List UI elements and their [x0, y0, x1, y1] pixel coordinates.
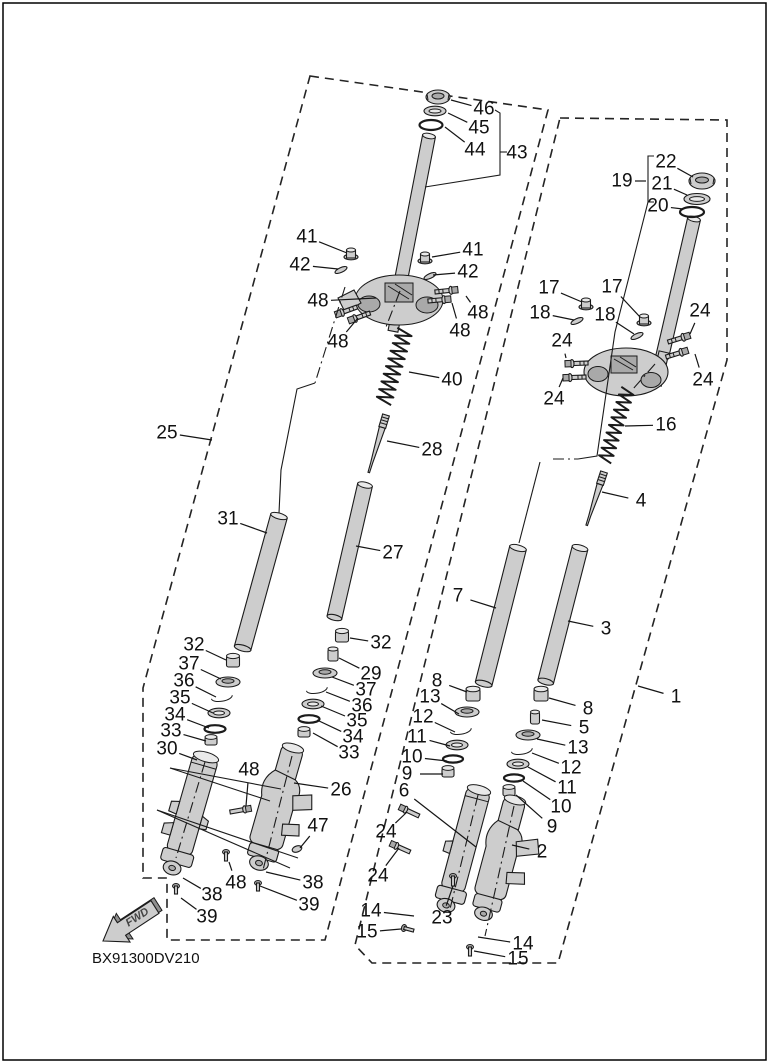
- bush-5: [531, 710, 540, 724]
- callout-leader: [313, 733, 338, 747]
- callout-leader: [671, 208, 683, 209]
- clip-36-right: [306, 687, 327, 695]
- callout-46: 46: [473, 99, 494, 120]
- callout-42: 42: [457, 262, 478, 283]
- callout-leader: [181, 898, 197, 909]
- spacer-8-right: [534, 686, 548, 701]
- seal-11-left: [446, 740, 468, 750]
- clip-12-right: [511, 748, 532, 756]
- callout-45: 45: [468, 118, 489, 139]
- callout-47: 47: [307, 816, 328, 837]
- callout-leader: [638, 686, 664, 693]
- callout-18: 18: [594, 305, 615, 326]
- callout-41: 41: [296, 227, 317, 248]
- seal-35-left: [208, 708, 230, 718]
- steering-oring-44: [420, 120, 443, 130]
- fork-spring-40: [376, 328, 413, 405]
- callout-leader: [313, 266, 338, 269]
- callout-24: 24: [692, 370, 714, 391]
- callout-leader: [553, 316, 574, 320]
- callout-leader: [206, 651, 226, 660]
- callout-4: 4: [636, 491, 647, 512]
- callout-28: 28: [421, 440, 442, 461]
- callout-leader: [451, 100, 471, 106]
- callout-leader: [528, 767, 556, 782]
- callout-24: 24: [367, 866, 389, 887]
- callout-leader: [409, 372, 439, 378]
- grommet-41-left: [344, 248, 358, 260]
- callout-leader: [386, 848, 399, 866]
- callout-leader: [602, 492, 628, 498]
- callout-16: 16: [655, 415, 676, 436]
- callout-leader: [266, 872, 300, 880]
- callout-leader: [183, 878, 201, 888]
- spacer-8-left: [466, 686, 480, 701]
- callout-17: 17: [601, 277, 622, 298]
- callout-leader: [180, 435, 212, 440]
- inner-tube-31: [234, 511, 288, 653]
- callout-10: 10: [550, 797, 571, 818]
- callout-19: 19: [611, 171, 632, 192]
- callout-leader: [229, 862, 232, 871]
- callout-leader: [470, 600, 496, 608]
- washer-34-left: [205, 725, 226, 733]
- callout-leader: [432, 252, 460, 257]
- callout-12: 12: [560, 758, 581, 779]
- callout-25: 25: [156, 423, 177, 444]
- steering-oring-20: [680, 207, 704, 217]
- callout-42: 42: [289, 255, 310, 276]
- diagram-svg: FWD BX91300DV210 46454443414241424848484…: [0, 0, 770, 1064]
- callout-leader: [380, 929, 401, 931]
- callout-leader: [384, 913, 414, 916]
- callout-leader: [240, 523, 267, 533]
- callout-24: 24: [551, 331, 573, 352]
- callout-leader: [565, 354, 566, 358]
- washer-13-left: [455, 707, 479, 717]
- callout-leader: [319, 242, 347, 253]
- callout-leader: [478, 937, 510, 942]
- callout-39: 39: [196, 907, 217, 928]
- bolt-48-bottom: [223, 850, 230, 862]
- callout-leader: [568, 621, 593, 626]
- callout-24: 24: [543, 389, 565, 410]
- seal-35-right: [302, 699, 324, 709]
- callout-8: 8: [583, 699, 594, 720]
- callout-26: 26: [330, 780, 351, 801]
- screw-15-left: [401, 924, 415, 934]
- callout-38: 38: [302, 873, 323, 894]
- callout-leader: [561, 293, 582, 302]
- screw-39-left: [173, 884, 180, 895]
- callout-layer: 4645444341424142484848484028253127323736…: [156, 99, 714, 970]
- bolt-24: [563, 373, 586, 382]
- callout-leader: [677, 168, 693, 177]
- washer-10-right: [504, 774, 524, 781]
- callout-5: 5: [579, 718, 590, 739]
- callout-leader: [317, 720, 341, 731]
- callout-39: 39: [298, 895, 319, 916]
- callout-48: 48: [307, 291, 328, 312]
- callout-11: 11: [407, 727, 427, 748]
- washer-34-right: [299, 715, 320, 723]
- callout-leader: [435, 723, 455, 732]
- damper-rod-4: [583, 471, 607, 526]
- callout-1: 1: [671, 687, 682, 708]
- parts-diagram-page: FWD BX91300DV210 46454443414241424848484…: [0, 0, 770, 1064]
- fork-spring-16: [598, 387, 635, 464]
- callout-21: 21: [651, 174, 672, 195]
- callout-leader: [448, 113, 467, 122]
- callout-13: 13: [567, 738, 588, 759]
- bush-33-right: [298, 727, 310, 737]
- callout-30: 30: [156, 739, 177, 760]
- callout-leader: [187, 720, 209, 728]
- seal-11-right: [507, 759, 529, 769]
- callout-38: 38: [201, 885, 222, 906]
- callout-48: 48: [327, 332, 348, 353]
- bush-9-right: [503, 785, 515, 796]
- callout-leader: [690, 323, 695, 334]
- callout-leader: [621, 297, 640, 317]
- steering-washer-45: [424, 106, 446, 116]
- callout-12: 12: [412, 707, 433, 728]
- bolt-48-mid: [229, 805, 251, 816]
- washer-18-left: [570, 316, 584, 326]
- callout-48: 48: [449, 321, 470, 342]
- steering-washer-21: [684, 194, 710, 205]
- lower-bracket-right: [584, 348, 669, 396]
- fork-lower-30: [151, 746, 227, 880]
- callout-leader: [445, 127, 465, 142]
- callout-leader: [300, 836, 310, 848]
- callout-leader: [356, 546, 380, 551]
- callout-leader: [474, 951, 505, 957]
- washer-13-right: [516, 730, 540, 740]
- callout-leader: [452, 303, 456, 319]
- steering-cap-nut-22: [689, 173, 715, 189]
- damper-rod-28: [365, 414, 389, 473]
- spacer-32-right: [336, 628, 349, 642]
- spacer-32-left: [227, 653, 240, 667]
- page-border: [3, 3, 766, 1060]
- washer-37-right: [313, 668, 337, 678]
- callout-leader: [441, 704, 459, 714]
- callout-31: 31: [217, 509, 238, 530]
- callout-leader: [616, 322, 634, 334]
- callout-9: 9: [547, 817, 558, 838]
- callout-32: 32: [183, 635, 204, 656]
- callout-leader: [523, 781, 550, 800]
- callout-27: 27: [382, 543, 403, 564]
- callout-41: 41: [462, 240, 483, 261]
- callout-18: 18: [529, 303, 550, 324]
- bush-33-left: [205, 735, 217, 745]
- callout-leader: [183, 735, 206, 741]
- callout-24: 24: [375, 822, 397, 843]
- callout-leader: [339, 658, 359, 668]
- callout-6: 6: [399, 781, 410, 802]
- callout-leader: [466, 296, 471, 302]
- callout-22: 22: [655, 152, 676, 173]
- callout-leader: [321, 706, 345, 716]
- callout-33: 33: [338, 743, 359, 764]
- assembly-line: [578, 202, 648, 459]
- screw-15-right: [467, 945, 474, 957]
- assembly-line: [279, 383, 315, 513]
- grommet-41-right: [418, 252, 432, 264]
- callout-leader: [260, 886, 297, 900]
- callout-11: 11: [557, 778, 577, 799]
- callout-17: 17: [538, 278, 559, 299]
- callout-44: 44: [464, 140, 486, 161]
- callout-leader: [449, 685, 467, 692]
- bush-9-left: [442, 766, 454, 777]
- washer-42-left: [334, 265, 348, 275]
- callout-23: 23: [431, 908, 452, 929]
- washer-42-right: [423, 271, 437, 281]
- callout-32: 32: [370, 633, 391, 654]
- inner-tube-3: [537, 543, 588, 686]
- callout-48: 48: [238, 760, 259, 781]
- callout-leader: [201, 670, 221, 679]
- callout-leader: [549, 698, 575, 705]
- callout-leader: [196, 687, 216, 697]
- callout-leader: [532, 753, 559, 763]
- callout-48: 48: [225, 873, 246, 894]
- callout-leader: [559, 378, 563, 387]
- callout-leader: [625, 425, 653, 426]
- callout-24: 24: [689, 301, 711, 322]
- callout-leader: [674, 189, 687, 195]
- bush-29: [328, 647, 338, 661]
- clip-12-left: [450, 728, 471, 736]
- callout-leader: [695, 354, 699, 368]
- inner-tube-7: [475, 543, 527, 689]
- callout-20: 20: [647, 196, 668, 217]
- assembly-line: [519, 462, 540, 543]
- callout-40: 40: [441, 370, 462, 391]
- fwd-arrow: FWD: [103, 898, 162, 942]
- callout-3: 3: [601, 619, 612, 640]
- grommet-17-left: [579, 298, 593, 310]
- callout-leader: [246, 783, 248, 806]
- callout-7: 7: [453, 586, 464, 607]
- callout-leader: [350, 638, 368, 641]
- callout-leader: [537, 739, 565, 745]
- callout-15: 15: [356, 922, 377, 943]
- diagram-code: BX91300DV210: [92, 950, 200, 967]
- callout-48: 48: [467, 303, 488, 324]
- callout-14: 14: [360, 901, 382, 922]
- inner-tube-27: [326, 481, 372, 622]
- callout-13: 13: [419, 687, 440, 708]
- callout-2: 2: [537, 842, 548, 863]
- callout-43: 43: [506, 143, 527, 164]
- callout-leader: [387, 441, 419, 447]
- washer-10-left: [443, 755, 463, 762]
- steering-cap-nut-46: [426, 90, 450, 104]
- callout-leader: [326, 692, 350, 701]
- callout-leader: [332, 677, 354, 685]
- callout-15: 15: [507, 949, 528, 970]
- callout-leader: [395, 812, 407, 823]
- callout-leader: [542, 720, 571, 726]
- callout-leader: [192, 703, 213, 713]
